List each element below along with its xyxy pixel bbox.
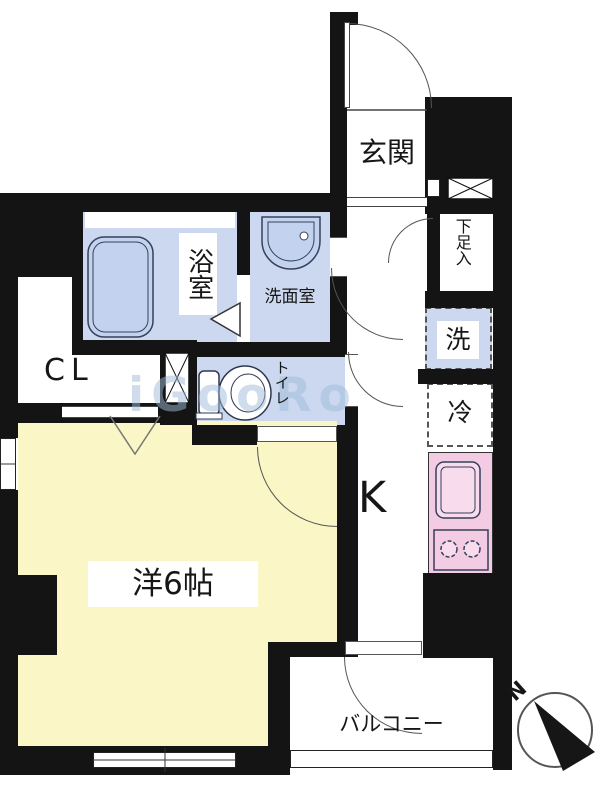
- wall: [418, 369, 493, 384]
- entrance-door-leaf: [344, 22, 350, 108]
- room-washroom: [250, 203, 330, 342]
- label-washer: 洗: [437, 321, 479, 359]
- entrance-door-arc: [347, 23, 432, 108]
- room-main-lower: [18, 643, 268, 746]
- balcony-railing: [290, 750, 493, 768]
- wall: [192, 342, 347, 357]
- label-washroom: 洗面室: [248, 289, 332, 307]
- main-room-doorway: [257, 426, 337, 442]
- wall: [493, 97, 512, 770]
- label-toilet: トイレ: [273, 360, 289, 424]
- compass-icon: [518, 693, 595, 771]
- wall: [192, 425, 257, 445]
- meter-box: [427, 179, 440, 197]
- label-shoe-cabinet: 下足入: [453, 218, 470, 294]
- wall: [337, 425, 358, 657]
- window-bottom: [93, 752, 236, 768]
- wall: [0, 193, 347, 212]
- wall-pillar: [0, 575, 57, 655]
- label-genkan: 玄関: [347, 138, 427, 167]
- label-closet: CL: [44, 355, 94, 387]
- wall: [423, 573, 493, 658]
- label-main-room: 洋6帖: [88, 561, 258, 607]
- watermark-text: iGooRo: [128, 368, 358, 423]
- label-kitchen: K: [358, 476, 386, 521]
- genkan-step: [347, 197, 427, 207]
- label-fridge: 冷: [427, 400, 493, 426]
- bath-counter: [85, 212, 235, 228]
- wall: [237, 208, 250, 275]
- kitchen-unit: [428, 452, 493, 575]
- window-left: [0, 438, 16, 490]
- hall-door-arc: [388, 218, 433, 263]
- label-balcony: バルコニー: [290, 713, 493, 735]
- label-bath: 浴室: [179, 233, 217, 315]
- balcony-doorway: [345, 641, 422, 655]
- floor-plan: iGooRo 玄関 浴室 洗面室 トイレ CL 下足入 洗 冷 K 洋6帖 バル…: [0, 0, 600, 800]
